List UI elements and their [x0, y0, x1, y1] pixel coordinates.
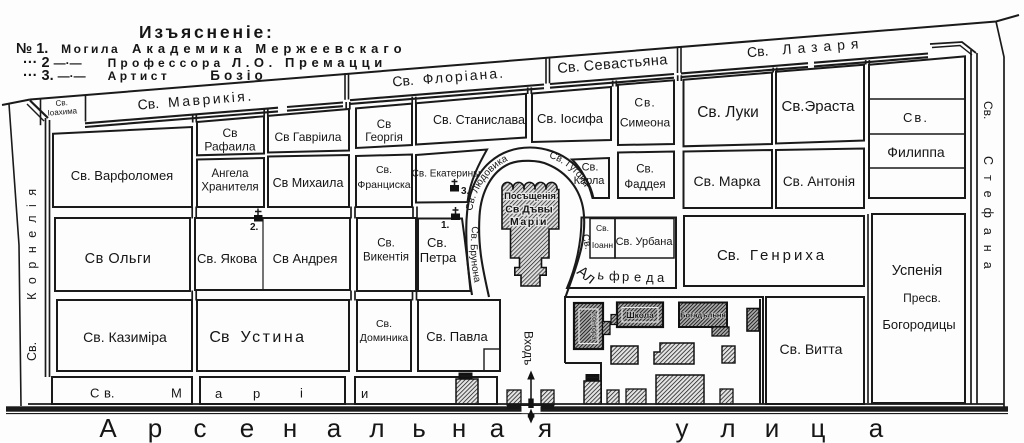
svg-text:Св Дъвы: Св Дъвы: [505, 204, 553, 216]
svg-text:М: М: [171, 386, 182, 401]
svg-text:Св. Павла: Св. Павла: [426, 329, 488, 344]
svg-text:Школа: Школа: [626, 310, 654, 320]
svg-text:Св. Казиміра: Св. Казиміра: [83, 329, 167, 345]
svg-text:л: л: [369, 413, 384, 443]
svg-text:Св.: Св.: [377, 238, 395, 250]
svg-text:СвУстина: СвУстина: [209, 329, 306, 346]
svg-text:Св. Витта: Св. Витта: [780, 341, 843, 357]
svg-text:а: а: [657, 270, 665, 285]
svg-text:р: р: [253, 386, 260, 401]
svg-text:Св.: Св.: [582, 162, 599, 174]
svg-text:Св.: Св.: [636, 164, 654, 176]
svg-text:1.: 1.: [441, 220, 450, 231]
svg-text:ф: ф: [609, 269, 620, 284]
svg-text:Св.Генриха: Св.Генриха: [717, 247, 827, 264]
svg-text:Св. Екатерины: Св. Екатерины: [412, 169, 481, 180]
svg-text:2.: 2.: [250, 222, 259, 233]
svg-text:Св. Урбана: Св. Урбана: [616, 236, 674, 248]
svg-text:Св. Станислава: Св. Станислава: [433, 113, 525, 127]
svg-text:Св. Луки: Св. Луки: [697, 104, 759, 121]
svg-text:Изъясненіе:: Изъясненіе:: [139, 22, 275, 42]
svg-text:е: е: [240, 413, 254, 443]
svg-text:Викентія: Викентія: [363, 252, 409, 264]
svg-text:Св.: Св.: [596, 223, 609, 233]
svg-text:С: С: [90, 386, 99, 401]
svg-text:Св.: Св.: [376, 164, 392, 176]
svg-text:Георгія: Георгія: [365, 132, 403, 144]
svg-text:Доминика: Доминика: [360, 332, 409, 344]
svg-text:ц: ц: [811, 413, 826, 443]
svg-text:Ангела: Ангела: [211, 168, 249, 180]
svg-text:Св.: Св.: [634, 96, 655, 110]
svg-text:а: а: [327, 413, 342, 443]
svg-text:Св.: Св.: [427, 235, 447, 250]
svg-text:А: А: [99, 413, 117, 443]
svg-text:Рафаила: Рафаила: [204, 140, 256, 154]
svg-text:Посъщенія: Посъщенія: [504, 191, 556, 202]
svg-text:д: д: [646, 270, 654, 285]
svg-text:Св: Св: [222, 126, 237, 140]
svg-text:Успенія: Успенія: [892, 263, 943, 279]
svg-text:Св.Эраста: Св.Эраста: [782, 98, 856, 115]
svg-text:с: с: [194, 413, 207, 443]
svg-text:а: а: [490, 413, 505, 443]
svg-text:Св Михаила: Св Михаила: [273, 176, 344, 190]
svg-text:н: н: [452, 413, 466, 443]
svg-text:і: і: [300, 386, 303, 401]
svg-text:у: у: [676, 413, 689, 443]
svg-text:Контора: Контора: [590, 313, 597, 340]
svg-text:Св. Іосифа: Св. Іосифа: [537, 111, 604, 126]
svg-text:Св.: Св.: [981, 101, 995, 119]
svg-text:Входъ: Входъ: [522, 331, 536, 366]
svg-text:н: н: [283, 413, 297, 443]
svg-text:л: л: [720, 413, 735, 443]
svg-text:Св Гавріила: Св Гавріила: [275, 130, 342, 144]
svg-text:е: е: [634, 270, 641, 285]
svg-text:ь: ь: [412, 413, 426, 443]
svg-text:Богадъльня: Богадъльня: [680, 311, 726, 320]
svg-text:Фаддея: Фаддея: [624, 179, 665, 191]
svg-text:Св. Якова: Св. Якова: [197, 251, 258, 266]
svg-text:Богородицы: Богородицы: [882, 317, 955, 332]
svg-text:Хранителя: Хранителя: [201, 182, 258, 194]
svg-text:Св. Марка: Св. Марка: [694, 173, 761, 189]
svg-text:Св.: Св.: [376, 318, 392, 330]
svg-text:Св Андрея: Св Андрея: [273, 251, 338, 266]
svg-text:Петра: Петра: [420, 250, 457, 265]
svg-text:··· 3. —·—АртистБозіо: ··· 3. —·—АртистБозіо: [23, 68, 267, 84]
svg-text:Стефана: Стефана: [981, 156, 995, 279]
svg-text:Св. Варфоломея: Св. Варфоломея: [71, 168, 173, 183]
svg-text:Симеона: Симеона: [620, 116, 671, 130]
svg-text:Франциска: Франциска: [357, 179, 410, 191]
svg-text:в.: в.: [104, 386, 115, 401]
svg-text:р: р: [622, 269, 629, 284]
svg-text:Пресв.: Пресв.: [903, 291, 941, 305]
svg-text:и: и: [361, 386, 368, 401]
svg-text:Іоанн: Іоанн: [592, 240, 614, 250]
svg-text:и: и: [765, 413, 780, 443]
svg-text:Св.: Св.: [903, 110, 929, 125]
svg-text:Св. Антонія: Св. Антонія: [783, 174, 855, 189]
svg-text:Маріи: Маріи: [510, 216, 548, 228]
svg-text:р: р: [148, 413, 162, 443]
svg-text:Св Ольги: Св Ольги: [85, 251, 152, 267]
svg-text:а: а: [869, 413, 884, 443]
svg-text:а: а: [215, 386, 223, 401]
svg-text:Св: Св: [377, 119, 391, 131]
svg-text:Филиппа: Филиппа: [887, 144, 945, 160]
svg-text:я: я: [538, 413, 552, 443]
